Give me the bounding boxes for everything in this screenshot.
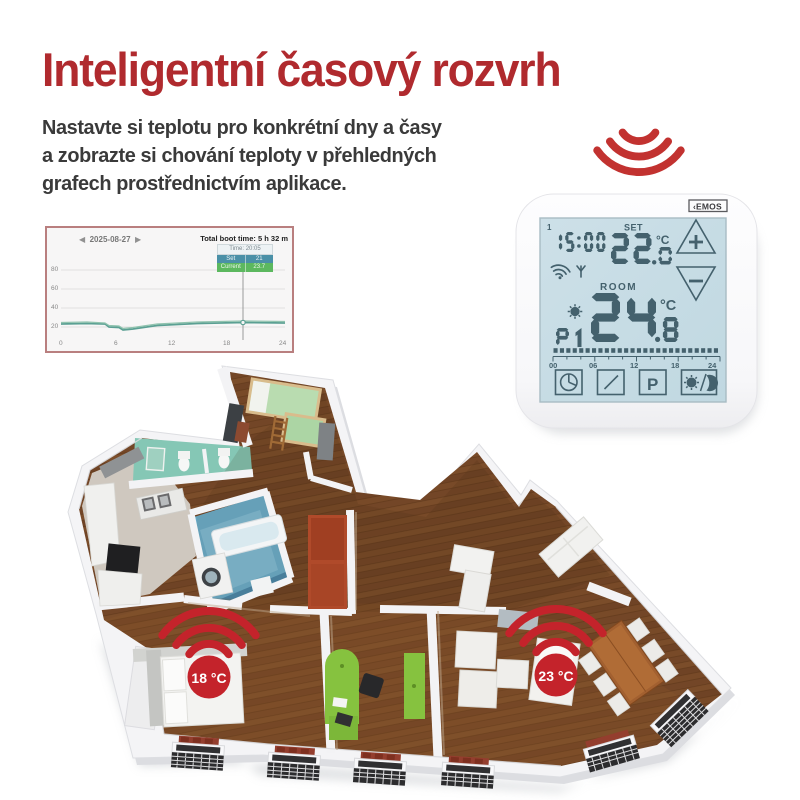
svg-text:°C: °C — [660, 298, 677, 314]
svg-text:°C: °C — [656, 233, 670, 247]
svg-text:SET: SET — [624, 223, 643, 233]
svg-text:06: 06 — [589, 361, 597, 370]
svg-text:18: 18 — [671, 361, 679, 370]
svg-text:ROOM: ROOM — [600, 282, 637, 293]
svg-text:00: 00 — [549, 361, 557, 370]
svg-text:‹EMOS: ‹EMOS — [693, 202, 722, 212]
svg-text:23 °C: 23 °C — [538, 668, 573, 684]
svg-text:1: 1 — [547, 223, 552, 232]
svg-text:P: P — [647, 375, 658, 394]
svg-text:24: 24 — [708, 361, 717, 370]
svg-text:12: 12 — [630, 361, 638, 370]
svg-text:18 °C: 18 °C — [191, 670, 226, 686]
